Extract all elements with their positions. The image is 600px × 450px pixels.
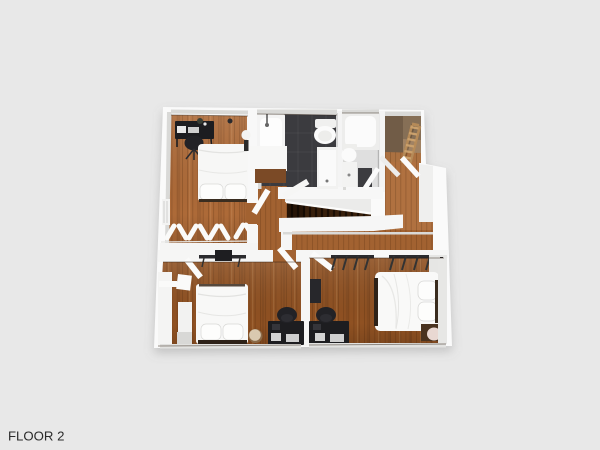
svg-text:FLOOR 2: FLOOR 2 xyxy=(8,429,64,444)
